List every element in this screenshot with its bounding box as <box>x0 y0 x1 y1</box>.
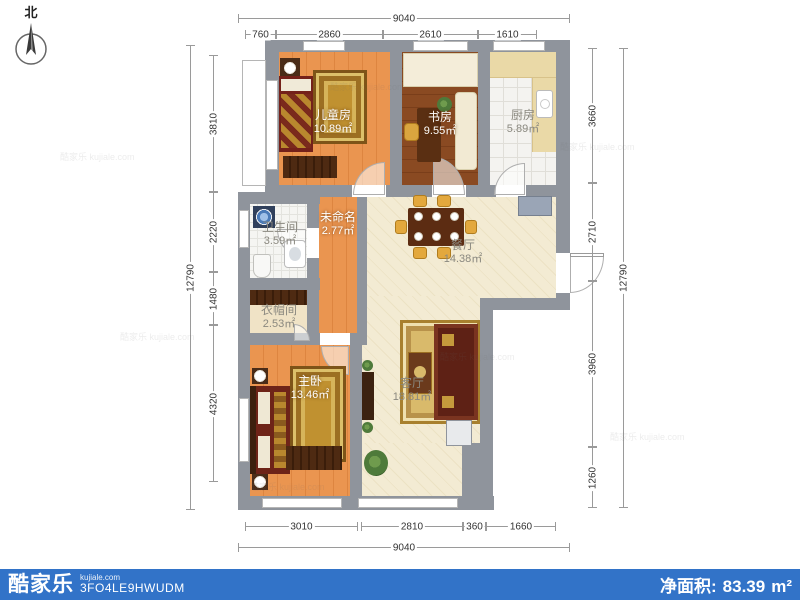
dim-right-total: 12790 <box>623 48 624 508</box>
wall-right-upper <box>556 40 570 253</box>
children-bed <box>279 76 313 152</box>
wall-step-corner <box>462 443 493 510</box>
room-label-master: 主卧13.46㎡ <box>291 374 330 403</box>
dim-left-total: 12790 <box>190 45 191 510</box>
net-area-unit: m² <box>771 577 792 597</box>
living-plant-small-1 <box>362 360 373 371</box>
living-plant-small-2 <box>362 422 373 433</box>
bay-window-children <box>242 60 266 186</box>
dim-left-seg-3: 1480 <box>213 272 214 325</box>
compass-icon <box>9 21 53 67</box>
brand-bar: 酷家乐 kujiale.com 3FO4LE9HWUDM 净面积: 83.39 … <box>0 569 800 600</box>
master-nightstand-lamp-2 <box>252 474 268 490</box>
wall-hall-right <box>357 185 367 345</box>
window-top-children <box>303 41 345 51</box>
dim-right-seg-2: 2710 <box>592 183 593 281</box>
children-nightstand-lamp-1 <box>280 58 300 78</box>
master-bed-quilt <box>274 392 286 468</box>
wall-children-study-divider <box>390 40 402 197</box>
room-label-children: 儿童房10.89㎡ <box>314 108 353 137</box>
dim-right-seg-1: 3660 <box>592 48 593 183</box>
dim-left-seg-2: 2220 <box>213 192 214 272</box>
living-sofa <box>434 324 478 420</box>
dim-right-seg-4: 1260 <box>592 447 593 508</box>
floorplan-page: 北 <box>0 0 800 600</box>
master-bed-pillow-2 <box>258 436 270 468</box>
net-area-label: 净面积: <box>660 572 717 597</box>
master-bed <box>250 386 290 474</box>
door-leaf-entry <box>570 253 604 257</box>
dim-bottom-seg-3: 360 <box>463 526 486 527</box>
dining-chair <box>413 195 427 207</box>
bathroom-basin-bowl <box>289 247 301 261</box>
living-side-table <box>446 420 472 446</box>
watermark: 酷家乐 kujiale.com <box>60 150 135 163</box>
net-area-value: 83.39 <box>723 577 766 597</box>
brand-logo: 酷家乐 <box>8 574 74 595</box>
wall-dining-bottom-right <box>480 298 570 310</box>
dim-bottom-total: 9040 <box>238 547 570 548</box>
wall-study-kitchen-divider <box>478 40 490 197</box>
dim-bottom-seg-4: 1660 <box>486 526 556 527</box>
room-label-cloakroom: 衣帽间2.53㎡ <box>261 303 297 332</box>
plan-code: 3FO4LE9HWUDM <box>80 582 185 595</box>
dining-chair <box>465 220 477 234</box>
window-left-children <box>266 80 278 170</box>
dining-chair <box>437 195 451 207</box>
study-chair <box>404 123 419 141</box>
window-left-bathroom <box>239 210 249 248</box>
dim-left-seg-1: 3810 <box>213 55 214 192</box>
children-bed-pillow <box>281 79 311 91</box>
children-dresser <box>283 156 337 178</box>
brand-url: kujiale.com <box>80 574 185 583</box>
master-dresser <box>286 446 342 470</box>
watermark: 酷家乐 kujiale.com <box>610 430 685 443</box>
study-closet <box>403 53 478 87</box>
door-gap-master <box>320 333 350 345</box>
bathroom-toilet <box>253 254 271 278</box>
kitchen-counter-top <box>490 52 556 78</box>
room-label-kitchen: 厨房5.89㎡ <box>507 108 539 137</box>
master-bed-pillow-1 <box>258 392 270 424</box>
window-bottom-master <box>262 498 342 508</box>
room-label-unnamed: 未命名2.77㎡ <box>320 210 356 239</box>
study-lounge <box>455 92 477 170</box>
wall-toprow-bottom-c <box>466 185 496 197</box>
dining-chair <box>413 247 427 259</box>
children-bed-quilt <box>281 94 311 148</box>
compass: 北 <box>8 2 54 72</box>
window-left-master <box>239 398 249 462</box>
window-top-study <box>413 41 468 51</box>
master-nightstand-lamp-1 <box>252 368 268 384</box>
dim-top-seg-1: 760 <box>245 34 276 35</box>
living-sofa-cushion-1 <box>442 334 454 346</box>
dim-bottom-seg-2: 2810 <box>361 526 463 527</box>
dining-cabinet <box>518 196 552 216</box>
room-label-living: 客厅18.81㎡ <box>393 376 432 405</box>
living-plant-big <box>364 450 388 476</box>
dim-bottom-seg-1: 3010 <box>245 526 358 527</box>
net-area: 净面积: 83.39 m² <box>660 572 792 597</box>
dim-top-seg-4: 1610 <box>478 34 537 35</box>
living-sofa-cushion-2 <box>442 396 454 408</box>
dim-top-total: 9040 <box>238 18 570 19</box>
kitchen-sink-drain <box>540 99 550 109</box>
master-bed-headboard <box>250 386 256 474</box>
dining-chair <box>395 220 407 234</box>
dim-left-seg-4: 4320 <box>213 325 214 482</box>
compass-north-label: 北 <box>8 2 54 21</box>
room-label-study: 书房9.55㎡ <box>424 110 456 139</box>
dim-top-seg-3: 2610 <box>383 34 478 35</box>
window-top-kitchen <box>493 41 545 51</box>
room-label-dining: 餐厅14.38㎡ <box>444 238 483 267</box>
wall-bath-right-a <box>307 192 319 228</box>
wall-master-right <box>350 345 362 510</box>
watermark: 酷家乐 kujiale.com <box>120 330 195 343</box>
door-gap-entry <box>556 253 570 293</box>
door-arc-entry <box>570 256 604 293</box>
dim-right-seg-3: 3960 <box>592 281 593 447</box>
door-gap-bathroom <box>307 228 319 258</box>
window-bottom-living <box>358 498 458 508</box>
living-tv-cabinet <box>362 372 374 420</box>
room-label-bathroom: 卫生间3.59㎡ <box>262 220 298 249</box>
dim-top-seg-2: 2860 <box>276 34 383 35</box>
